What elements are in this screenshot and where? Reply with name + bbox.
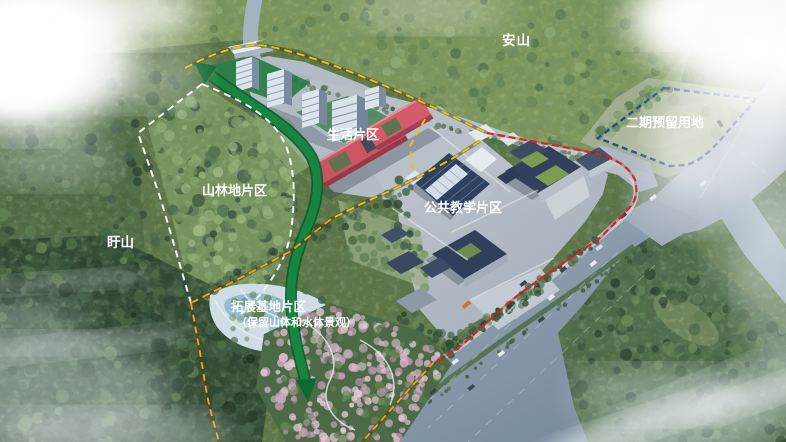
svg-text:公共教学片区: 公共教学片区 bbox=[424, 200, 502, 215]
svg-text:山林地片区: 山林地片区 bbox=[202, 183, 267, 198]
svg-text:安山: 安山 bbox=[502, 32, 531, 48]
svg-text:（保留山体和水体景观）: （保留山体和水体景观） bbox=[236, 315, 357, 329]
svg-text:二期预留用地: 二期预留用地 bbox=[626, 115, 704, 130]
svg-text:盱山: 盱山 bbox=[107, 235, 134, 250]
svg-text:拓展基地片区: 拓展基地片区 bbox=[231, 299, 307, 314]
svg-text:生活片区: 生活片区 bbox=[327, 127, 379, 142]
